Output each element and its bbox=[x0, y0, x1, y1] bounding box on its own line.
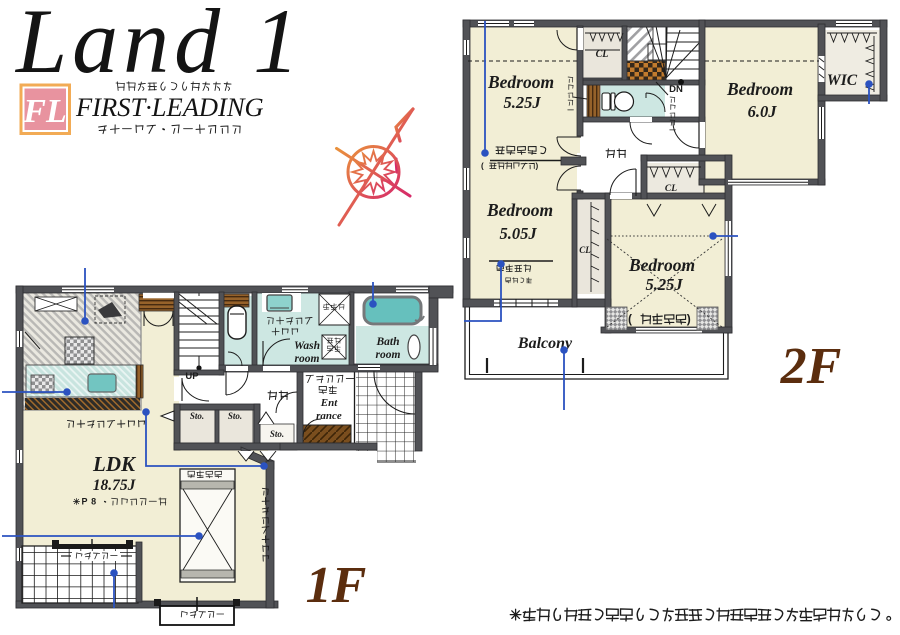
svg-text:Sto.: Sto. bbox=[228, 411, 242, 421]
svg-text:room: room bbox=[376, 349, 401, 361]
svg-text:): ) bbox=[536, 162, 539, 171]
svg-text:CL: CL bbox=[579, 245, 591, 255]
svg-text:CL: CL bbox=[665, 184, 677, 194]
svg-text:CL: CL bbox=[596, 49, 609, 60]
svg-text:Bedroom: Bedroom bbox=[486, 200, 553, 220]
svg-text:rance: rance bbox=[316, 410, 342, 422]
svg-text:6.0J: 6.0J bbox=[748, 102, 778, 121]
svg-text:Bedroom: Bedroom bbox=[726, 79, 793, 99]
svg-text:1F: 1F bbox=[306, 557, 367, 614]
svg-text:): ) bbox=[687, 312, 691, 326]
svg-text:Bedroom: Bedroom bbox=[487, 72, 554, 92]
svg-text:Bedroom: Bedroom bbox=[628, 255, 695, 275]
svg-text:room: room bbox=[295, 353, 320, 365]
svg-text:Wash: Wash bbox=[294, 340, 320, 352]
svg-text:Ent: Ent bbox=[320, 397, 338, 409]
svg-text:WIC: WIC bbox=[827, 72, 858, 89]
svg-text:(: ( bbox=[481, 162, 484, 171]
svg-text:DN: DN bbox=[669, 84, 683, 95]
svg-text:Sto.: Sto. bbox=[270, 429, 284, 439]
svg-text:5.05J: 5.05J bbox=[499, 224, 537, 243]
svg-text:UP: UP bbox=[185, 371, 199, 382]
svg-text:Sto.: Sto. bbox=[190, 411, 204, 421]
svg-text:2F: 2F bbox=[780, 338, 842, 395]
svg-text:P: P bbox=[82, 497, 88, 507]
svg-text:(: ( bbox=[628, 312, 632, 326]
svg-text:FL: FL bbox=[22, 93, 66, 130]
svg-text:Bath: Bath bbox=[375, 336, 399, 348]
svg-text:18.75J: 18.75J bbox=[93, 477, 137, 494]
svg-text:5.25J: 5.25J bbox=[645, 275, 683, 294]
svg-text:8: 8 bbox=[91, 497, 96, 507]
svg-text:LDK: LDK bbox=[92, 452, 137, 476]
svg-text:Land 1: Land 1 bbox=[14, 0, 304, 92]
svg-text:5.25J: 5.25J bbox=[503, 93, 541, 112]
svg-text:FIRST·LEADING: FIRST·LEADING bbox=[75, 92, 264, 122]
